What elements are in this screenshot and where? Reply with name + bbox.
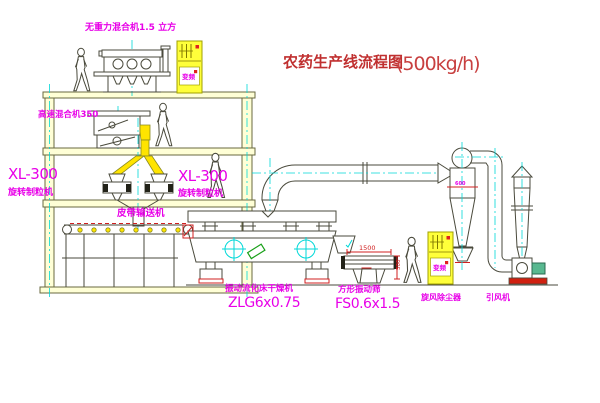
fan-label: 引风机: [486, 292, 510, 302]
granulator-right-model: XL-300: [178, 167, 227, 185]
high-speed-mixer-label: 高速混合机350: [38, 109, 98, 120]
exhaust-duct: [252, 158, 450, 216]
screen-height-dim: 500: [396, 259, 402, 270]
title-text: 农药生产线流程图: [282, 53, 403, 71]
granulator-right-name: 旋转制粒机: [177, 187, 223, 199]
granulator-left-name: 旋转制粒机: [7, 186, 53, 198]
granulator-right: [145, 174, 173, 200]
fluid-bed-dryer: [183, 211, 336, 283]
title: 农药生产线流程图 (500kg/h): [282, 53, 480, 75]
dryer-discharge-cone: [333, 236, 355, 253]
cad-drawing: 变频: [0, 0, 600, 403]
control-cabinet-2: [428, 232, 453, 284]
cabinet1-label: 变频: [182, 72, 196, 81]
screen-length-dim: 1500: [359, 244, 376, 252]
screen-model-label: FS0.6x1.5: [335, 296, 400, 312]
title-capacity: (500kg/h): [396, 53, 480, 75]
belt-conveyor: [62, 224, 193, 288]
cyclone-dia-dim: 600: [455, 181, 466, 187]
person-roof: [74, 48, 90, 91]
gravity-mixer-label: 无重力混合机1.5 立方: [84, 21, 176, 33]
granulator-left: [103, 174, 131, 200]
person-ground: [404, 237, 421, 282]
flow-diagram-canvas: 变频: [0, 0, 600, 403]
belt-conveyor-label: 皮带输送机: [116, 207, 165, 219]
induced-draft-fan: [509, 258, 547, 284]
control-cabinet-1: [177, 41, 202, 93]
granulator-left-model: XL-300: [8, 165, 57, 183]
screen-name-label: 方形振动筛: [338, 284, 381, 295]
cyclone-label: 旋风除尘器: [420, 292, 462, 302]
gravity-mixer: [94, 40, 170, 96]
dryer-model-label: ZLG6x0.75: [228, 295, 300, 311]
person-floor2: [156, 103, 172, 146]
dryer-name-label: 振动流化床干燥机: [225, 283, 294, 294]
vibrating-screen: [341, 249, 400, 283]
cabinet2-label: 变频: [433, 263, 447, 272]
